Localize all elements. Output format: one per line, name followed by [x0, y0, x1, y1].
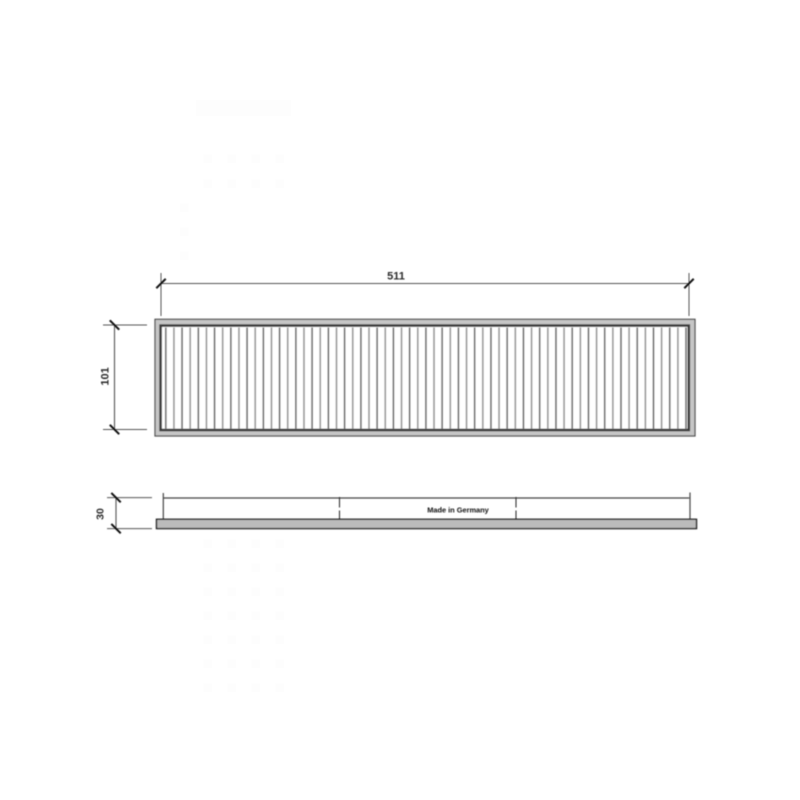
svg-text:101: 101 [100, 367, 112, 385]
svg-text:30: 30 [95, 508, 107, 520]
svg-text:511: 511 [387, 271, 405, 283]
svg-text:Made in Germany: Made in Germany [427, 505, 489, 514]
